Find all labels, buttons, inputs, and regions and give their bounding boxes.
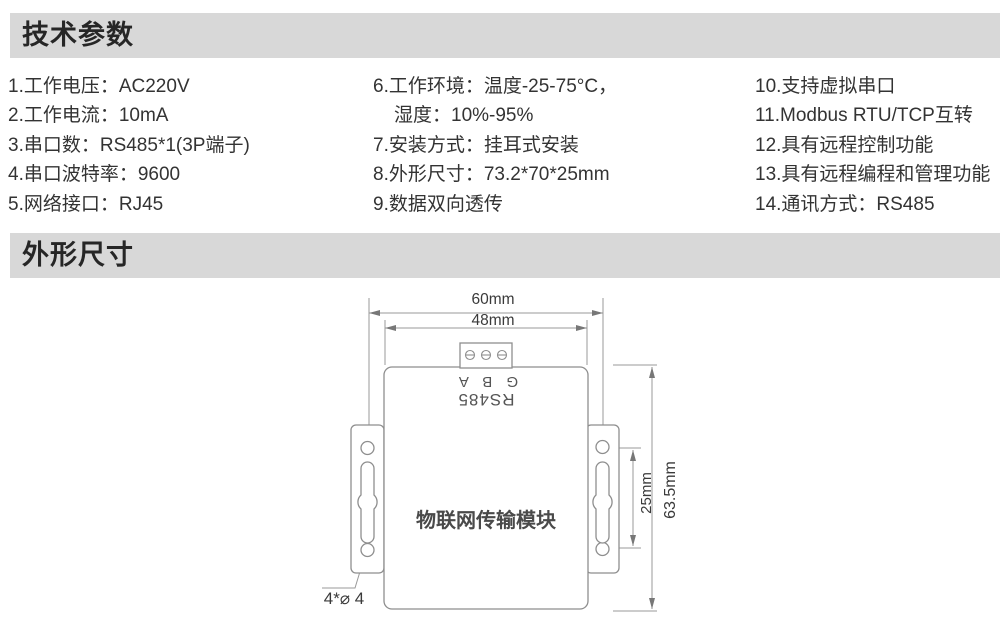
device-name-label: 物联网传输模块 xyxy=(416,508,557,532)
section-title: 外形尺寸 xyxy=(10,233,1000,278)
mounting-hole xyxy=(361,544,374,557)
dim-label-width-inner: 48mm xyxy=(471,312,514,329)
hole-diameter-note: 4*⌀ 4 xyxy=(324,589,364,608)
param-item: 8.外形尺寸：73.2*70*25mm xyxy=(373,160,617,189)
param-item: 10.支持虚拟串口 xyxy=(755,72,990,101)
mounting-slot-left xyxy=(358,462,377,543)
param-item-continuation: 湿度：10%-95% xyxy=(373,101,617,130)
datasheet-page: { "tech_params": { "title": "技术参数", "col… xyxy=(0,0,1000,630)
param-item: 9.数据双向透传 xyxy=(373,190,617,219)
port-pins-label: G B A xyxy=(454,373,518,390)
param-item: 2.工作电流：10mA xyxy=(8,101,250,130)
param-column-1: 1.工作电压：AC220V 2.工作电流：10mA 3.串口数：RS485*1(… xyxy=(8,72,250,219)
param-item: 1.工作电压：AC220V xyxy=(8,72,250,101)
param-item: 4.串口波特率：9600 xyxy=(8,160,250,189)
param-item: 13.具有远程编程和管理功能 xyxy=(755,160,990,189)
mounting-hole xyxy=(361,442,374,455)
param-item: 3.串口数：RS485*1(3P端子) xyxy=(8,131,250,160)
dim-label-hole-spacing: 25mm xyxy=(638,472,655,514)
section-header-dimensions: 外形尺寸 xyxy=(10,233,1000,278)
mounting-hole xyxy=(596,543,609,556)
dim-label-overall-height: 63.5mm xyxy=(662,461,679,519)
dim-label-width-outer: 60mm xyxy=(471,291,514,308)
param-column-2: 6.工作环境：温度-25-75°C， 湿度：10%-95% 7.安装方式：挂耳式… xyxy=(373,72,617,219)
mounting-hole xyxy=(596,441,609,454)
param-item: 11.Modbus RTU/TCP互转 xyxy=(755,101,990,130)
mounting-slot-right xyxy=(593,462,612,543)
dimension-drawing: 60mm 48mm 25mm 63.5mm 4*⌀ 4 G B A RS485 … xyxy=(280,282,720,630)
param-item: 12.具有远程控制功能 xyxy=(755,131,990,160)
param-item: 7.安装方式：挂耳式安装 xyxy=(373,131,617,160)
section-header-tech-params: 技术参数 xyxy=(10,13,1000,58)
section-title: 技术参数 xyxy=(10,13,1000,58)
param-item: 5.网络接口：RJ45 xyxy=(8,190,250,219)
port-type-label: RS485 xyxy=(458,390,515,409)
param-item: 14.通讯方式：RS485 xyxy=(755,190,990,219)
param-item: 6.工作环境：温度-25-75°C， xyxy=(373,72,617,101)
param-column-3: 10.支持虚拟串口 11.Modbus RTU/TCP互转 12.具有远程控制功… xyxy=(755,72,990,219)
